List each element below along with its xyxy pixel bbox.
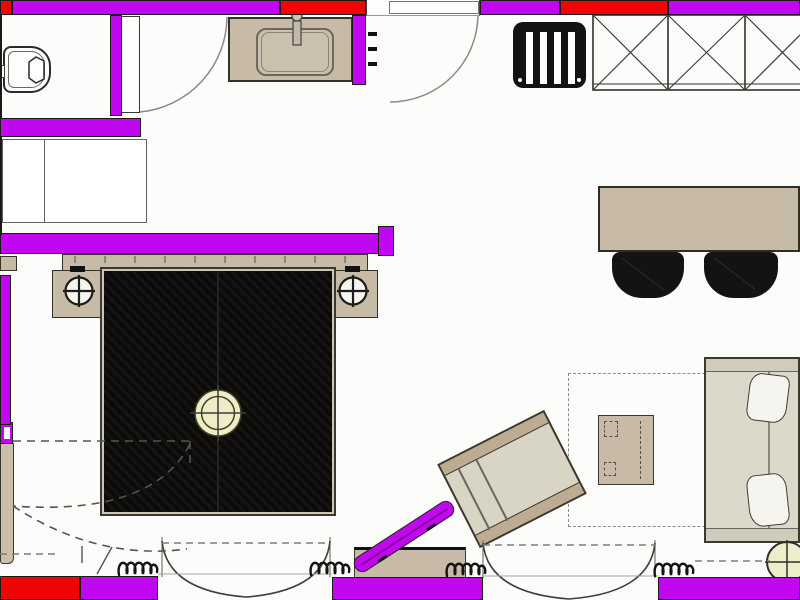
- bench-slat-gap: [540, 32, 547, 84]
- lounge-chair: [437, 410, 587, 548]
- folding-door-leaf: [0, 443, 14, 564]
- left-wall: [0, 275, 11, 425]
- bench-slat-gap: [554, 32, 561, 84]
- sofa-rim: [706, 359, 798, 372]
- wall-cap-inner: [4, 427, 10, 439]
- wardrobe: [593, 15, 800, 90]
- entry-door-arc: [390, 14, 478, 102]
- towel-rail-ticks: [368, 34, 377, 64]
- curtain-squiggle: [655, 564, 694, 576]
- highlighted-wall-bottom-2: [332, 577, 483, 600]
- wardrobe-outline: [593, 15, 800, 90]
- accent-wall-corner: [0, 0, 12, 15]
- bench-dot: [518, 78, 522, 82]
- bathroom-bottom-wall: [0, 118, 141, 137]
- left-edge-line: [0, 137, 2, 235]
- bed-wall-end-pier: [378, 226, 394, 256]
- toilet-seat: [8, 51, 45, 88]
- lamp-mount-left: [70, 266, 85, 272]
- sink-basin-inner: [261, 32, 329, 72]
- slatted-bench: [513, 22, 586, 88]
- accent-wall-top: [280, 0, 366, 15]
- nightstand-left: [52, 270, 104, 318]
- highlighted-wall-bottom-1: [80, 576, 158, 600]
- pouf-stitch: [604, 462, 616, 476]
- sofa-pillow: [745, 472, 790, 528]
- mattress-seam: [217, 271, 219, 512]
- sofa-pillow: [745, 372, 791, 425]
- bench-slat-gap: [568, 32, 575, 84]
- bench-dot: [577, 78, 581, 82]
- highlighted-wall-top-1: [12, 0, 280, 15]
- nightstand-right: [330, 270, 378, 318]
- pouf-table: [598, 415, 654, 485]
- highlighted-wall-bottom-3: [658, 577, 800, 600]
- luggage-rack-foot: [426, 523, 436, 531]
- left-edge-line: [0, 15, 2, 119]
- dining-chair-left: [612, 252, 684, 298]
- highlighted-wall-top-2: [480, 0, 560, 15]
- sofa-rim: [706, 528, 798, 541]
- bathroom-pier: [110, 15, 122, 116]
- floor-plan: [0, 0, 800, 600]
- bed-wall: [0, 233, 393, 254]
- lamp-mount-right: [345, 266, 360, 272]
- dining-table: [598, 186, 800, 252]
- wall-cap: [0, 422, 13, 444]
- bathroom-door-leaf: [121, 16, 140, 113]
- highlighted-wall-top-3: [668, 0, 800, 15]
- accent-wall-top-right: [560, 0, 668, 15]
- pouf-stitch-line: [640, 421, 641, 479]
- service-shaft-left: [2, 139, 50, 223]
- bench-slat-gap: [526, 32, 533, 84]
- headboard-return: [0, 256, 17, 271]
- vanity-counter: [228, 17, 353, 82]
- service-shaft-right: [44, 139, 147, 223]
- entry-door-leaf: [389, 1, 479, 14]
- door-stop-mark: [97, 547, 112, 574]
- curtain-squiggle: [311, 563, 350, 575]
- pouf-stitch: [604, 421, 618, 437]
- vanity-pier: [352, 15, 366, 85]
- bathroom-door-arc: [140, 17, 227, 112]
- entry-door-opening: [366, 0, 480, 16]
- accent-wall-bottom-left: [0, 576, 80, 600]
- curtain-squiggle: [119, 563, 158, 575]
- lounge-chair-arm: [440, 413, 549, 476]
- dining-chair-right: [704, 252, 778, 298]
- wardrobe-x-hatch: [593, 15, 800, 90]
